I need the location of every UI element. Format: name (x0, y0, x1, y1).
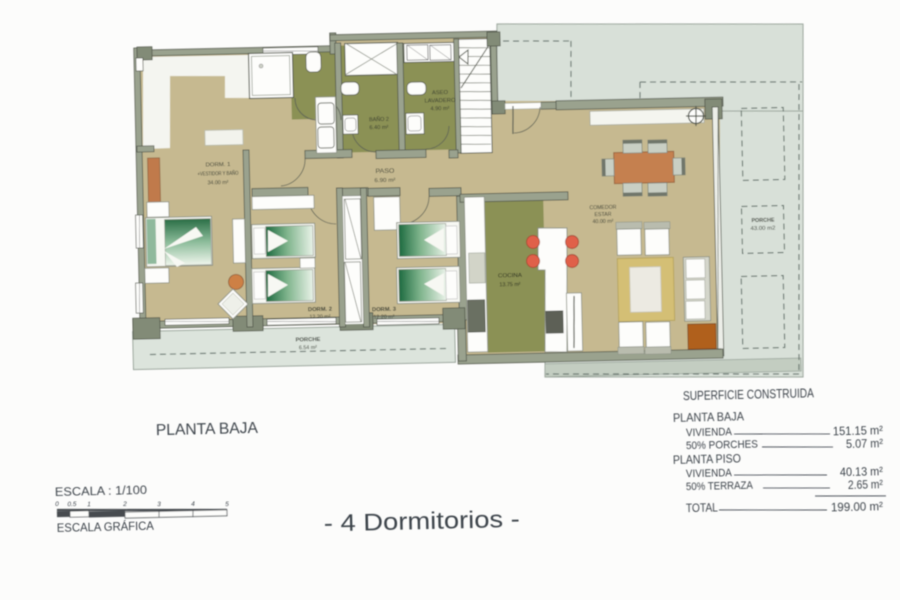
svg-text:12.20 m²: 12.20 m² (373, 314, 394, 320)
svg-text:PORCHE: PORCHE (751, 218, 774, 225)
svg-text:34.00 m²: 34.00 m² (207, 180, 228, 186)
svg-text:6.54 m²: 6.54 m² (299, 345, 317, 351)
svg-text:PASO: PASO (375, 169, 395, 175)
svg-text:ASEO: ASEO (432, 90, 449, 96)
svg-text:LAVADERO: LAVADERO (424, 98, 456, 105)
svg-text:PORCHE: PORCHE (295, 337, 320, 344)
svg-text:199.00 m²: 199.00 m² (831, 499, 883, 514)
svg-text:4: 4 (191, 501, 195, 508)
svg-text:50% PORCHES: 50% PORCHES (686, 438, 758, 452)
svg-text:3: 3 (157, 501, 161, 508)
svg-text:13.75 m²: 13.75 m² (499, 282, 520, 288)
svg-text:- 4 Dormitorios -: - 4 Dormitorios - (324, 506, 521, 537)
svg-text:COMEDOR: COMEDOR (589, 205, 616, 212)
svg-text:PLANTA PISO: PLANTA PISO (673, 451, 741, 467)
svg-text:+VESTIDOR Y BAÑO: +VESTIDOR Y BAÑO (197, 170, 239, 178)
svg-text:4.90 m²: 4.90 m² (430, 106, 449, 112)
svg-text:6.90 m²: 6.90 m² (374, 178, 395, 184)
svg-text:DORM. 2: DORM. 2 (308, 307, 332, 314)
svg-text:2: 2 (122, 501, 127, 508)
svg-text:2.65 m²: 2.65 m² (848, 477, 883, 492)
svg-text:0: 0 (55, 501, 59, 508)
svg-text:1: 1 (87, 501, 91, 508)
svg-text:DORM. 1: DORM. 1 (205, 162, 230, 169)
svg-text:5: 5 (225, 501, 229, 508)
svg-text:COCINA: COCINA (498, 273, 522, 280)
svg-text:40.00 m²: 40.00 m² (592, 219, 613, 225)
svg-text:BAÑO 2: BAÑO 2 (369, 116, 389, 123)
svg-text:PLANTA BAJA: PLANTA BAJA (673, 409, 744, 425)
svg-text:43.00 m2: 43.00 m2 (750, 226, 775, 233)
svg-text:5.07 m²: 5.07 m² (846, 436, 883, 451)
svg-text:ESTAR: ESTAR (594, 212, 611, 218)
svg-text:6.40 m²: 6.40 m² (369, 125, 388, 131)
svg-text:VIVIENDA: VIVIENDA (686, 426, 733, 439)
svg-text:PLANTA BAJA: PLANTA BAJA (156, 420, 259, 439)
svg-text:0.5: 0.5 (67, 501, 77, 508)
svg-text:TOTAL: TOTAL (686, 500, 719, 515)
svg-text:SUPERFICIE CONSTRUIDA: SUPERFICIE CONSTRUIDA (683, 386, 815, 403)
svg-text:DORM. 3: DORM. 3 (372, 307, 396, 314)
svg-text:12.20 m²: 12.20 m² (309, 314, 330, 320)
svg-text:VIVIENDA: VIVIENDA (686, 467, 733, 480)
svg-text:ESCALA : 1/100: ESCALA : 1/100 (55, 485, 147, 499)
svg-text:ESCALA GRÁFICA: ESCALA GRÁFICA (57, 518, 154, 535)
svg-text:50% TERRAZA: 50% TERRAZA (686, 479, 754, 493)
